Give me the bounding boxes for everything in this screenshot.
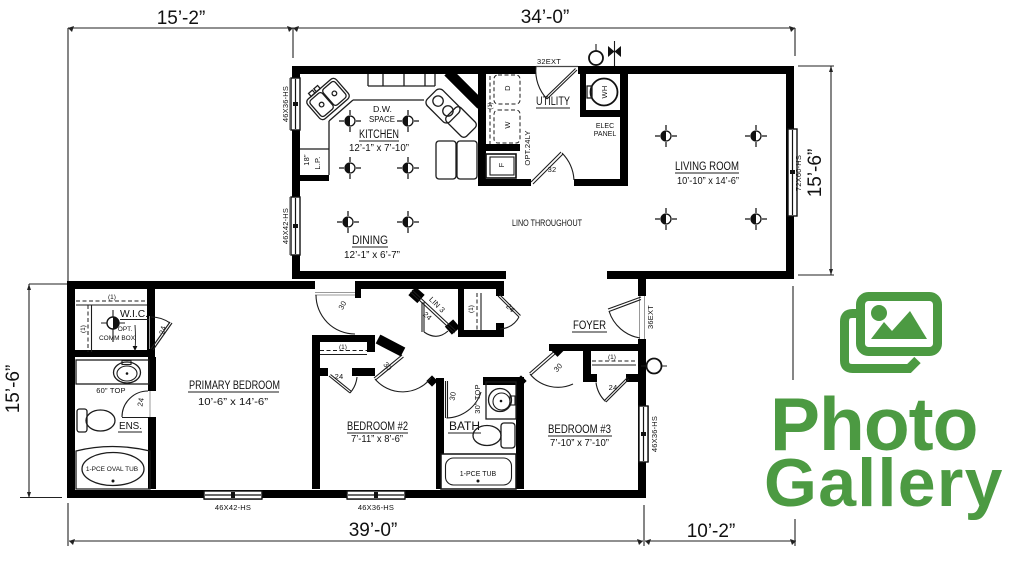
svg-text:BATH: BATH [449,421,480,433]
svg-text:10’-2”: 10’-2” [687,521,736,542]
svg-text:72X60-HS: 72X60-HS [794,155,803,191]
svg-text:1-PCE TUB: 1-PCE TUB [460,471,497,478]
svg-text:ELEC: ELEC [596,123,614,130]
svg-text:UTILITY: UTILITY [536,96,570,108]
svg-text:12’-1” x 7’-10”: 12’-1” x 7’-10” [349,143,409,154]
svg-text:L.P.: L.P. [313,156,322,169]
svg-text:18”: 18” [302,154,311,166]
svg-text:Gallery: Gallery [764,445,1004,521]
svg-text:46X42-HS: 46X42-HS [281,208,290,244]
svg-text:PANEL: PANEL [594,131,617,138]
svg-text:(1): (1) [339,344,347,351]
svg-text:OPT.24LY: OPT.24LY [523,130,532,165]
svg-text:46X36-HS: 46X36-HS [650,416,659,452]
svg-text:OPT.: OPT. [118,326,133,333]
svg-text:LINO THROUGHOUT: LINO THROUGHOUT [512,218,582,229]
svg-text:30: 30 [447,391,457,401]
svg-text:ENS.: ENS. [119,420,142,432]
svg-text:7’-11” x 8’-6”: 7’-11” x 8’-6” [351,434,403,445]
svg-text:15’-2”: 15’-2” [157,8,206,29]
svg-text:15’-6”: 15’-6” [805,149,826,198]
svg-text:39’-0”: 39’-0” [349,520,398,541]
svg-text:36EXT: 36EXT [646,305,655,329]
svg-text:W.I.C.: W.I.C. [120,308,148,320]
svg-text:WH: WH [600,86,609,99]
svg-text:D.W.: D.W. [373,104,392,114]
svg-text:COMM BOX: COMM BOX [99,335,136,342]
svg-text:BEDROOM #3: BEDROOM #3 [548,424,611,436]
svg-text:(1): (1) [108,294,116,301]
svg-text:KITCHEN: KITCHEN [359,129,399,141]
svg-text:PRIMARY BEDROOM: PRIMARY BEDROOM [189,378,280,392]
svg-text:W: W [503,121,512,129]
svg-text:F: F [497,162,506,167]
svg-text:30” TOP: 30” TOP [473,384,482,413]
svg-text:46X36-HS: 46X36-HS [358,503,394,512]
svg-text:24: 24 [609,383,618,392]
svg-text:(1): (1) [488,102,494,109]
svg-text:(1): (1) [608,354,616,361]
svg-text:32EXT: 32EXT [537,57,561,66]
svg-text:46X42-HS: 46X42-HS [215,503,251,512]
svg-text:12’-1” x 6’-7”: 12’-1” x 6’-7” [344,250,400,261]
svg-text:46X36-HS: 46X36-HS [281,86,290,122]
svg-text:10’-6” x 14’-6”: 10’-6” x 14’-6” [198,396,269,408]
svg-text:15’-6”: 15’-6” [3,365,24,414]
svg-text:7’-10” x 7’-10”: 7’-10” x 7’-10” [550,438,609,449]
svg-text:BEDROOM #2: BEDROOM #2 [347,421,408,433]
svg-text:(1): (1) [468,305,475,313]
svg-text:LIVING ROOM: LIVING ROOM [675,161,739,173]
svg-text:(1): (1) [80,325,87,333]
svg-text:SPACE: SPACE [369,114,395,124]
svg-text:10’-10” x 14’-6”: 10’-10” x 14’-6” [677,176,739,187]
svg-text:1-PCE OVAL TUB: 1-PCE OVAL TUB [86,466,138,473]
svg-text:24: 24 [135,397,145,407]
svg-text:60” TOP: 60” TOP [96,386,125,395]
svg-text:D: D [503,85,512,91]
svg-text:24: 24 [335,372,344,381]
svg-text:DINING: DINING [352,235,388,247]
svg-text:32: 32 [548,165,557,174]
svg-text:FOYER: FOYER [573,320,606,332]
svg-text:34’-0”: 34’-0” [521,7,570,28]
